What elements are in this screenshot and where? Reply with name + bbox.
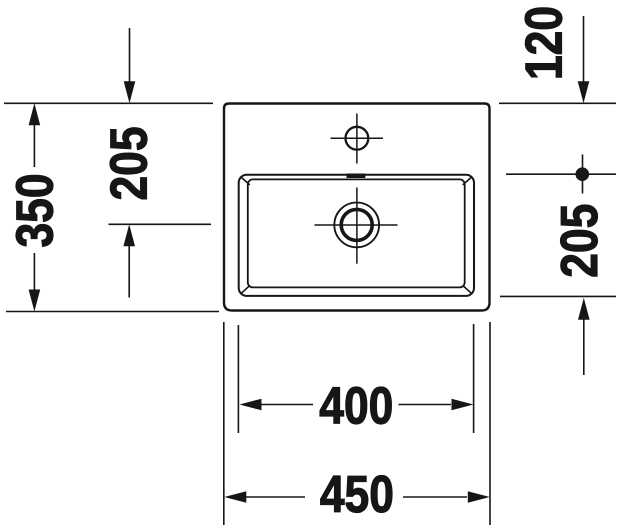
svg-text:450: 450 (320, 466, 394, 524)
svg-text:350: 350 (7, 173, 65, 247)
svg-text:120: 120 (515, 6, 573, 80)
svg-text:205: 205 (100, 126, 158, 200)
svg-text:400: 400 (319, 377, 393, 435)
svg-text:205: 205 (551, 204, 609, 278)
